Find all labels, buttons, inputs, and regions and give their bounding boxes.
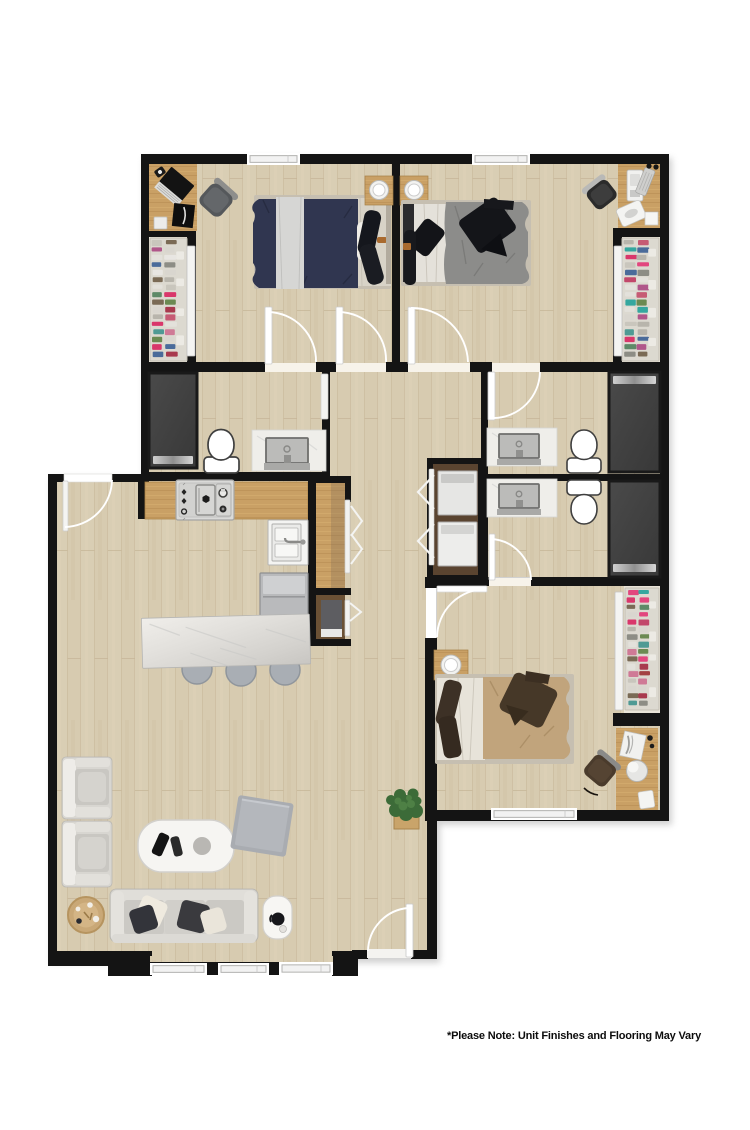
svg-text:*Please Note: Unit Finishes an: *Please Note: Unit Finishes and Flooring… (447, 1030, 702, 1042)
